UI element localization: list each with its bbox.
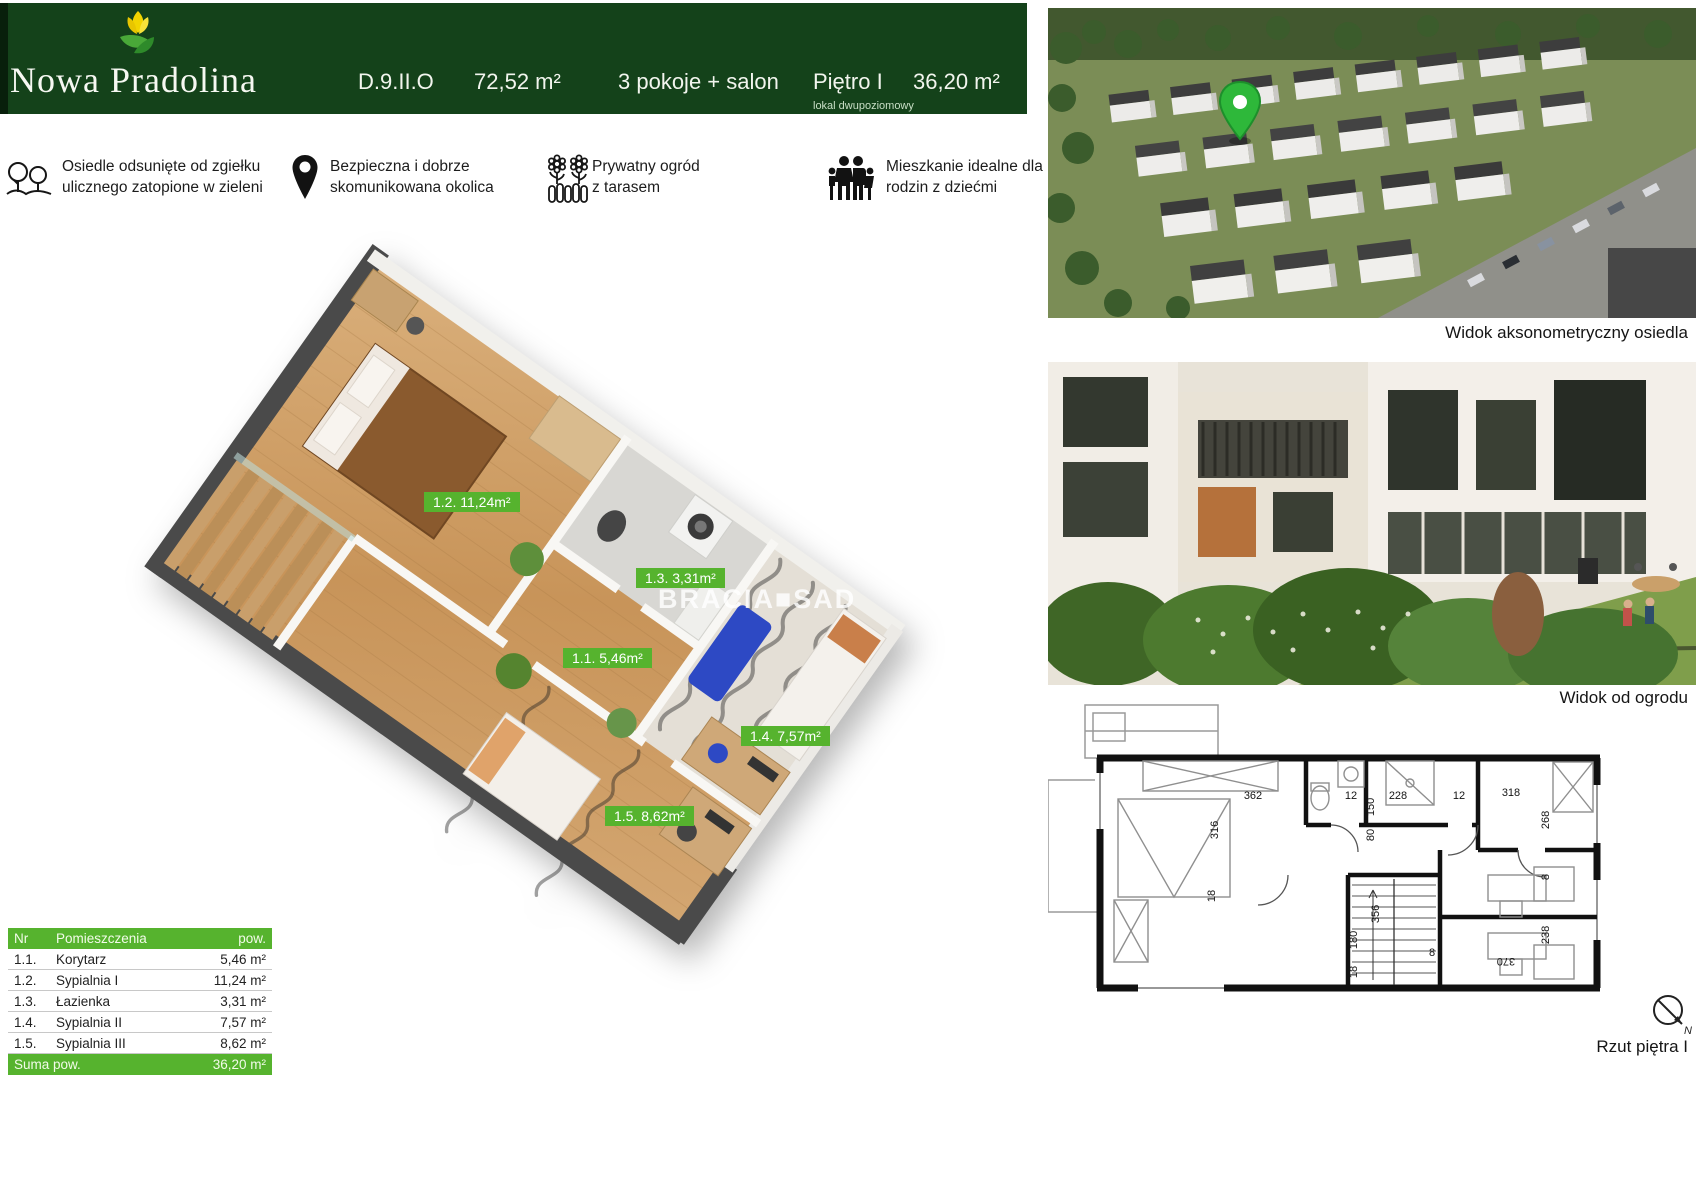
dimension-label: 12 [1453, 790, 1465, 802]
dimension-label: 8 [1540, 874, 1552, 880]
dimension-label: 362 [1244, 790, 1262, 802]
dimension-label: 316 [1209, 821, 1221, 839]
table-row: 1.4. Sypialnia II 7,57 m² [8, 1012, 272, 1033]
dimension-label: 268 [1540, 811, 1552, 829]
table-row: 1.2. Sypialnia I 11,24 m² [8, 970, 272, 991]
dimension-label: 12 [1345, 790, 1357, 802]
room-label-1-5: 1.5. 8,62m² [605, 806, 694, 826]
dimension-label: 318 [1502, 787, 1520, 799]
photo-garden-view [1048, 362, 1696, 685]
balcony [1198, 420, 1348, 478]
watermark: BRACIA■SAD [658, 584, 856, 615]
location-pin-icon [291, 153, 319, 203]
unit-code: D.9.II.O [358, 69, 434, 95]
dimension-label: 80 [1365, 829, 1377, 841]
dimension-label: 150 [1365, 798, 1377, 816]
unit-total-area: 72,52 m² [474, 69, 561, 95]
table-row: 1.3. Łazienka 3,31 m² [8, 991, 272, 1012]
brand-name: Nowa Pradolina [10, 59, 257, 101]
feature-text-2: Bezpieczna i dobrze skomunikowana okolic… [330, 156, 494, 198]
brochure-page: Nowa Pradolina D.9.II.O 72,52 m² 3 pokoj… [0, 0, 1696, 1200]
dimension-label: 8 [1429, 947, 1435, 959]
exterior-outlines [1048, 705, 1218, 912]
dimension-label: 18 [1348, 966, 1360, 978]
unit-floor-area: 36,20 m² [913, 69, 1000, 95]
col-area: pow. [238, 931, 266, 946]
feature-text-1: Osiedle odsunięte od zgiełku ulicznego z… [62, 156, 263, 198]
family-icon [827, 153, 875, 203]
feature-text-3: Prywatny ogród z tarasem [592, 156, 700, 198]
dimension-label: 356 [1370, 905, 1382, 923]
windows [1388, 380, 1646, 574]
dimension-label: 370 [1497, 955, 1515, 967]
dimension-label: 238 [1540, 926, 1552, 944]
dimension-label: 18 [1206, 890, 1218, 902]
trees-icon [4, 154, 54, 204]
door-arcs [1258, 825, 1545, 905]
unit-floor: Piętro I [813, 69, 883, 95]
stairs-2d [1352, 879, 1436, 985]
sum-value: 36,20 m² [213, 1057, 266, 1072]
feature-text-4: Mieszkanie idealne dla rodzin z dziećmi [886, 156, 1043, 198]
table-row: 1.5. Sypialnia III 8,62 m² [8, 1033, 272, 1054]
table-row: 1.1. Korytarz 5,46 m² [8, 949, 272, 970]
north-compass-icon: N [1648, 992, 1696, 1042]
rooms-table-footer: Suma pow. 36,20 m² [8, 1054, 272, 1075]
photo-aerial-estate [1048, 8, 1696, 318]
col-nr: Nr [14, 931, 56, 946]
garden-icon [543, 152, 595, 206]
large-building [1608, 248, 1696, 318]
plan2d-caption: Rzut piętra I [1596, 1037, 1688, 1057]
header-left-edge [0, 3, 8, 114]
brand-logo-icon [108, 7, 168, 63]
room-label-1-4: 1.4. 7,57m² [741, 726, 830, 746]
rooms-table: Nr Pomieszczenia pow. 1.1. Korytarz 5,46… [8, 928, 272, 1075]
unit-rooms: 3 pokoje + salon [618, 69, 779, 95]
sum-label: Suma pow. [14, 1057, 213, 1072]
dimension-label: 180 [1348, 931, 1360, 949]
compass-letter: N [1684, 1025, 1692, 1037]
floorplan-2d: 362 12 150 228 12 318 316 18 80 268 8 23… [1048, 695, 1696, 1075]
rooms-table-header: Nr Pomieszczenia pow. [8, 928, 272, 949]
room-label-1-2: 1.2. 11,24m² [424, 492, 520, 512]
col-name: Pomieszczenia [56, 931, 238, 946]
dimension-labels: 362 12 150 228 12 318 316 18 80 268 8 23… [1206, 787, 1552, 978]
header-bar: Nowa Pradolina D.9.II.O 72,52 m² 3 pokoj… [0, 3, 1027, 114]
room-label-1-1: 1.1. 5,46m² [563, 648, 652, 668]
dimension-label: 228 [1389, 790, 1407, 802]
photo2-caption: Widok od ogrodu [1559, 688, 1688, 708]
photo1-caption: Widok aksonometryczny osiedla [1445, 323, 1688, 343]
unit-floor-note: lokal dwupoziomowy [813, 100, 914, 112]
